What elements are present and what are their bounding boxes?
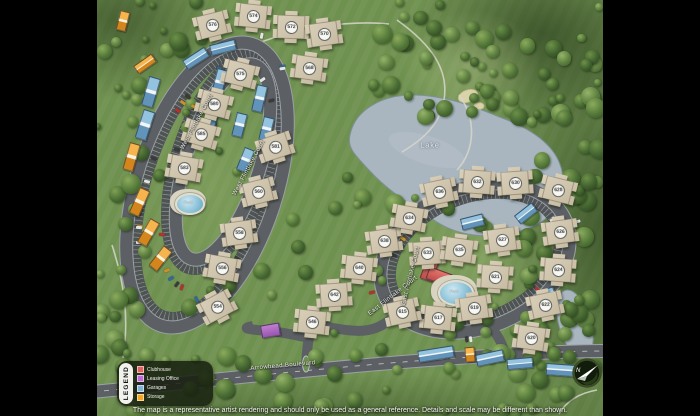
lake-label: Lake (420, 141, 439, 150)
svg-text:N: N (576, 368, 581, 374)
legend-color-chip (137, 375, 144, 382)
street-label-east-flintlake-court-south: East Flintlake Court (367, 275, 418, 317)
legend-title: LEGEND (119, 363, 133, 404)
legend-item-label: Leasing Office (147, 376, 179, 382)
street-label-west-flintlake-court-outer: West Flintlake Court (180, 93, 214, 150)
legend-item-storage: Storage (137, 394, 211, 401)
legend-item-leasing-office: Leasing Office (137, 375, 211, 382)
legend-color-chip (137, 385, 144, 392)
legend-item-label: Storage (147, 394, 165, 400)
site-map-screenshot: 5765745725705685755805855835815605585565… (0, 0, 700, 416)
legend-item-label: Clubhouse (147, 367, 171, 373)
legend-items: ClubhouseLeasing OfficeGaragesStorage (135, 361, 213, 406)
legend-color-chip (137, 394, 144, 401)
legend-item-label: Garages (147, 385, 166, 391)
community-site-map: 5765745725705685755805855835815605585565… (97, 0, 603, 416)
legend-color-chip (137, 366, 144, 373)
street-label-arrowhead-boulevard: Arrowhead Boulevard (250, 360, 316, 372)
pool-label: Pool (184, 200, 192, 205)
map-legend: LEGEND ClubhouseLeasing OfficeGaragesSto… (117, 361, 213, 406)
pool-label: Pool (450, 289, 458, 294)
legend-item-garages: Garages (137, 385, 211, 392)
map-disclaimer: The map is a representative artist rende… (97, 407, 603, 414)
legend-item-clubhouse: Clubhouse (137, 366, 211, 373)
street-label-west-flintlake-court-inner: West Flintlake Court (232, 139, 266, 196)
street-label-east-flintlake-court-west: East Flintlake Court (401, 246, 421, 306)
compass-north-icon: N (570, 356, 603, 395)
labels-layer: West Flintlake CourtWest Flintlake Court… (97, 0, 603, 416)
